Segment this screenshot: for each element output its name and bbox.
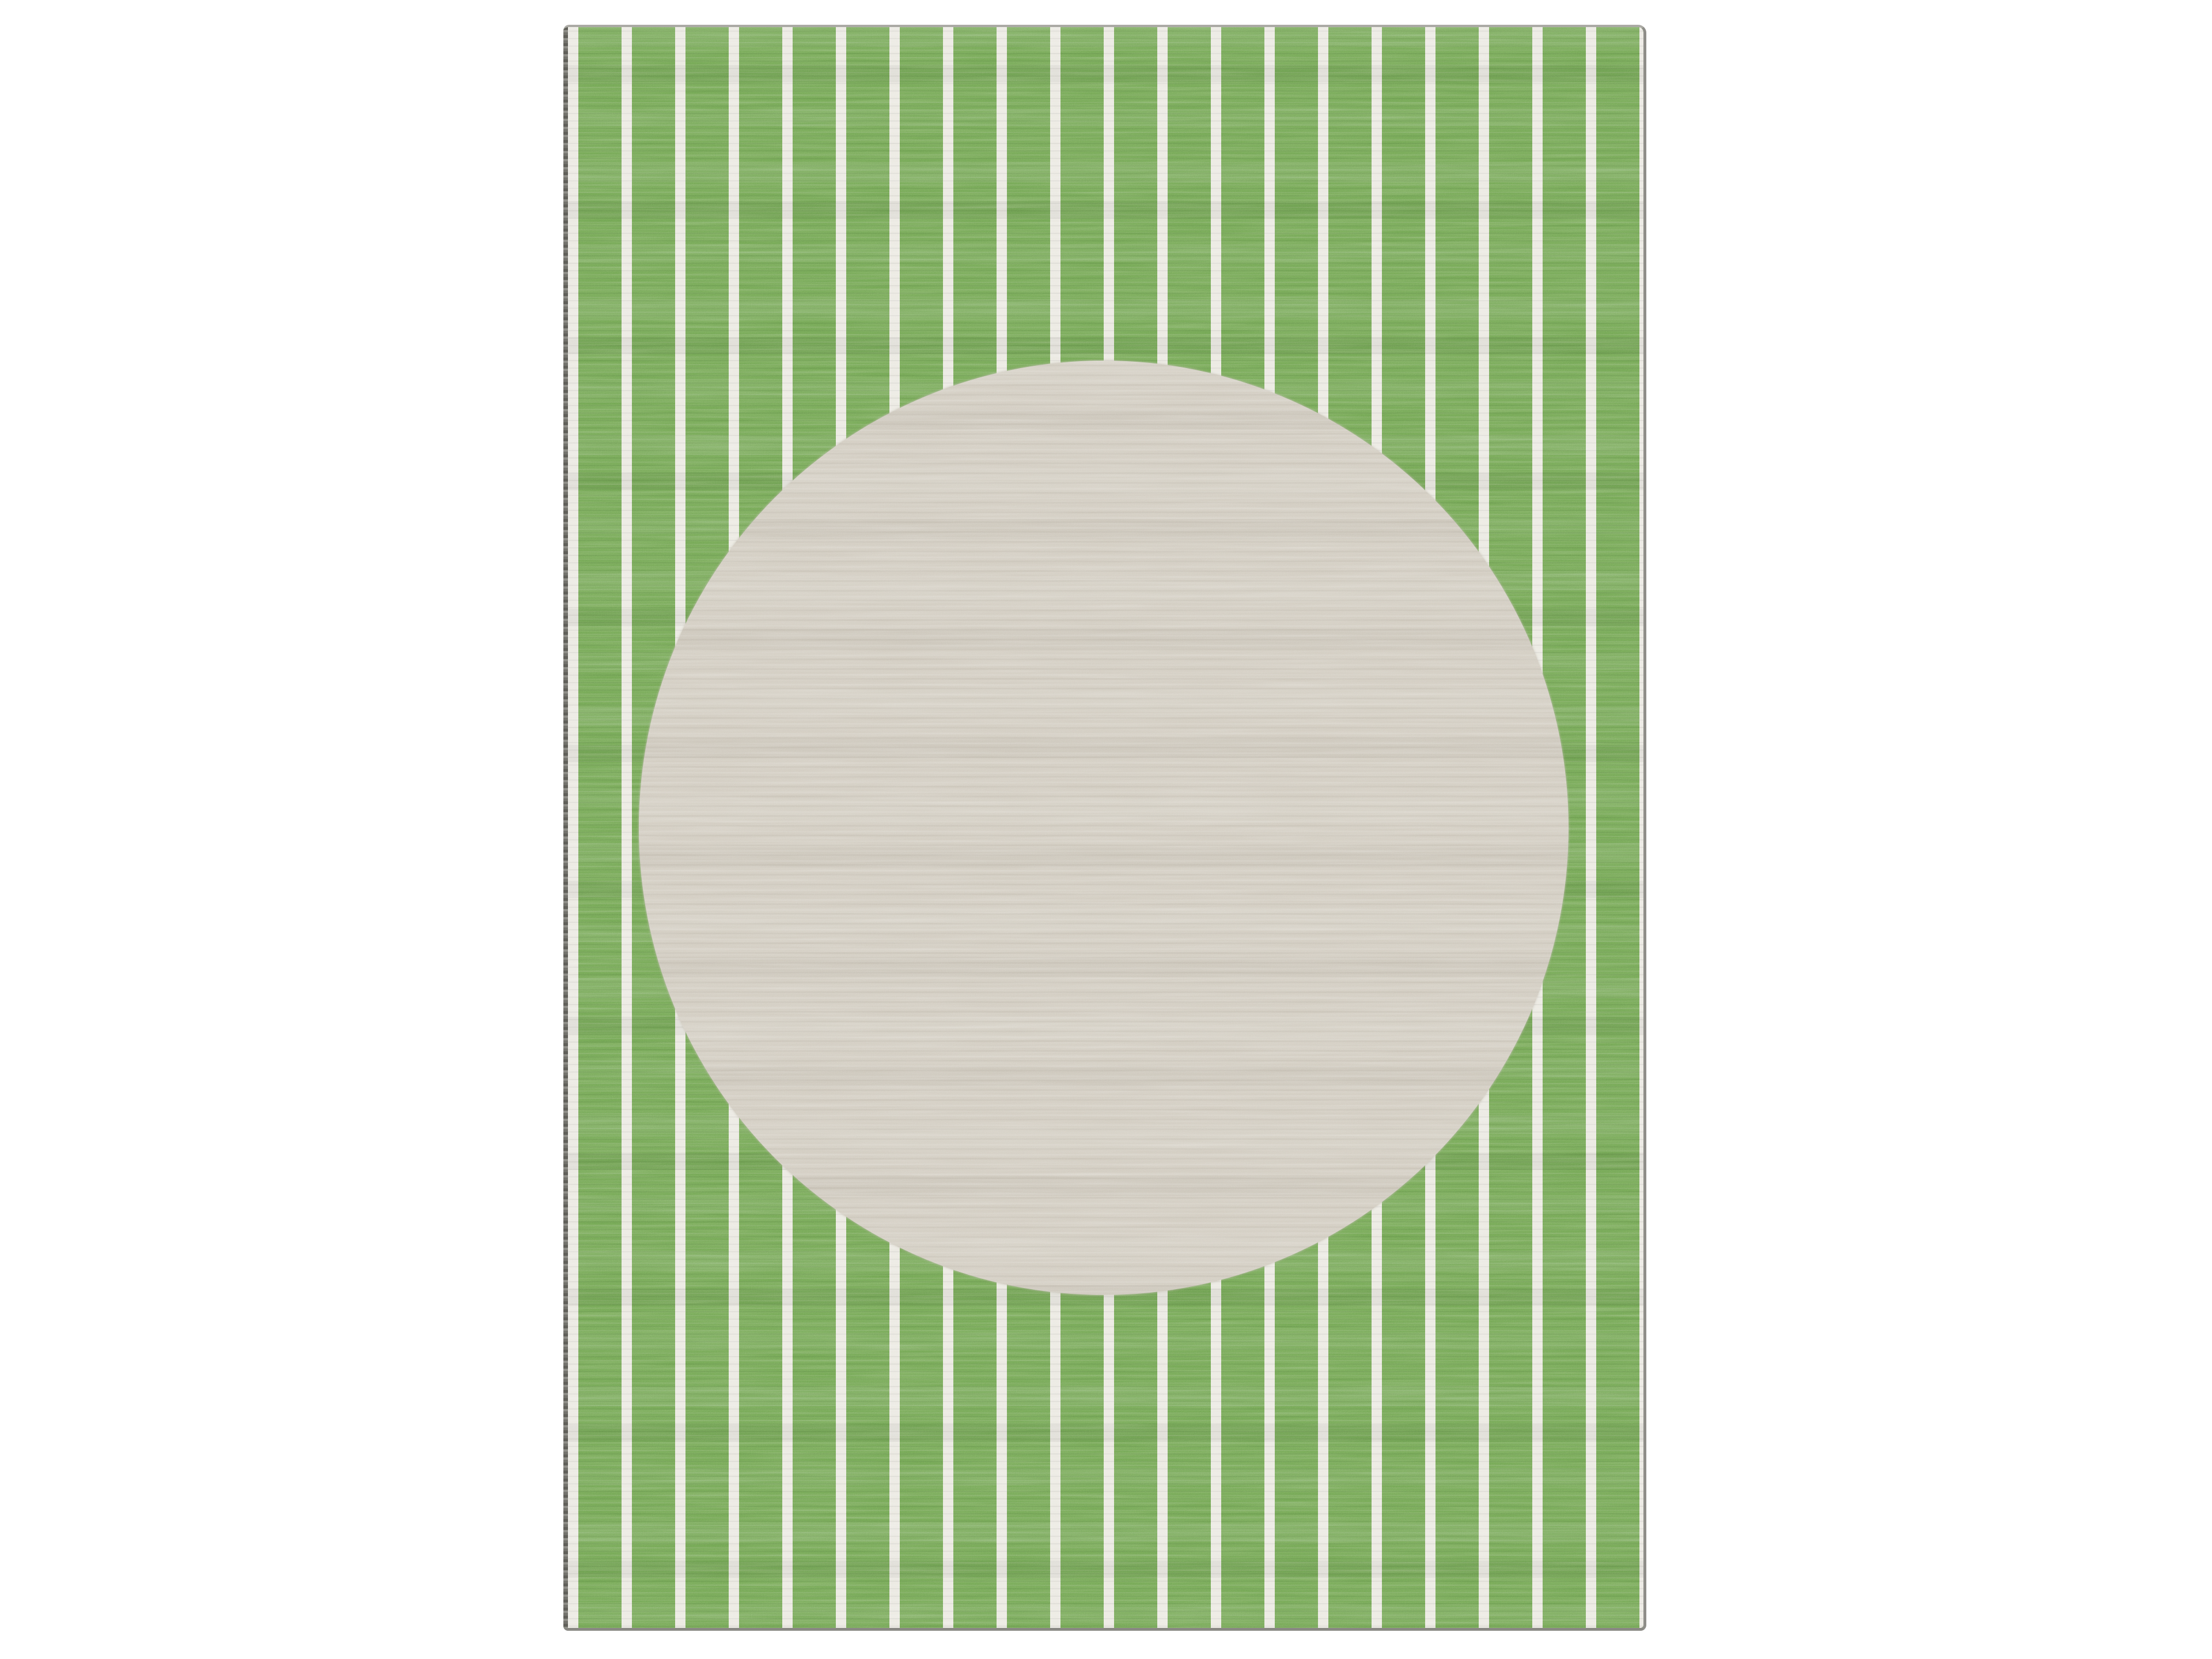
rug-left-serged-edge	[563, 27, 568, 1628]
product-photo-canvas	[0, 0, 2212, 1659]
rug	[563, 25, 1646, 1631]
rug-center-circle	[639, 361, 1569, 1295]
